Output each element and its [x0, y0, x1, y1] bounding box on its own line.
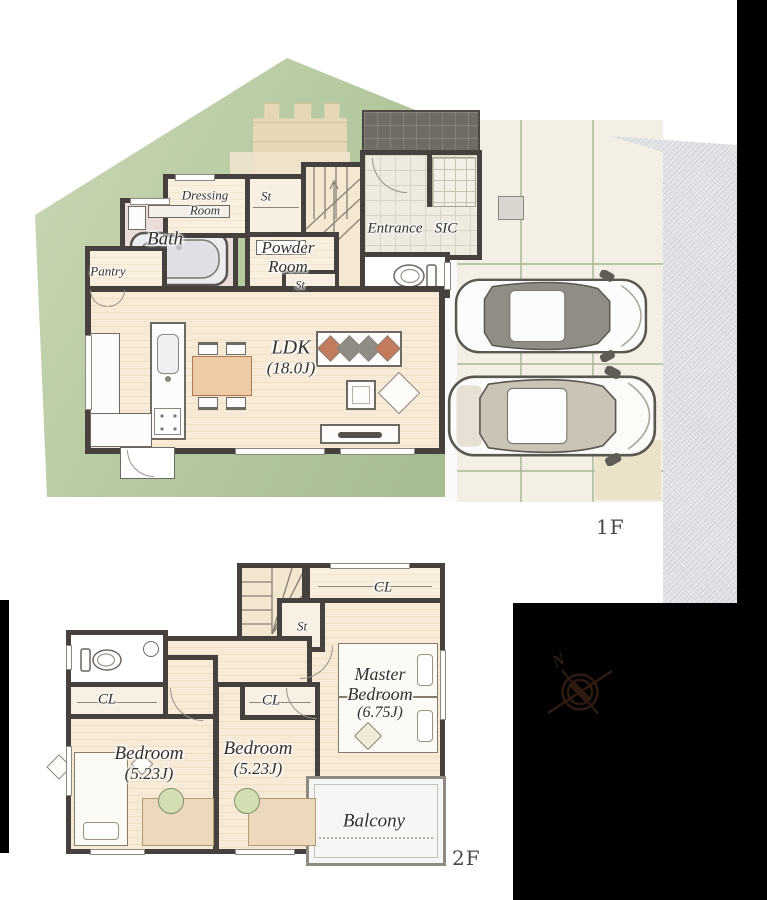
window — [235, 448, 325, 455]
label-pantry: Pantry — [90, 265, 125, 280]
car-icon — [446, 366, 658, 466]
label-cl-mid: CL — [262, 693, 280, 710]
window — [85, 335, 92, 410]
mask-top-right — [737, 0, 767, 605]
hand-basin — [143, 641, 159, 657]
balcony-drain-line — [319, 837, 433, 839]
desk-chair-icon — [158, 788, 184, 814]
cabinet — [90, 333, 120, 415]
closet-rod — [253, 207, 299, 208]
window — [330, 563, 410, 569]
entry-landing — [120, 447, 175, 479]
sofa-cushion — [374, 335, 401, 362]
label-balcony: Balcony — [343, 810, 405, 831]
room-toilet-2f — [66, 630, 168, 688]
dining-chair — [226, 342, 246, 355]
floor2-plan: N DN — [0, 560, 767, 900]
car-icon — [452, 270, 650, 362]
label-master-bedroom: Master Bedroom (6.75J) — [347, 664, 412, 722]
pillow — [83, 822, 119, 840]
window — [440, 650, 446, 720]
pillow — [417, 654, 433, 686]
label-bath: Bath — [147, 228, 183, 249]
toilet-icon — [79, 647, 125, 673]
label-entrance: Entrance — [368, 221, 423, 238]
label-dressing-room: Dressing Room — [182, 188, 228, 217]
sofa-icon — [316, 331, 402, 367]
label-powder-room: Powder Room — [262, 238, 315, 276]
door-arc — [127, 450, 154, 477]
kitchen-island-icon — [150, 322, 186, 440]
floor-plan-canvas: Dressing Room St Bath Powder Room Entran… — [0, 0, 767, 900]
window — [130, 198, 170, 205]
pillow — [417, 710, 433, 742]
dining-chair — [198, 342, 218, 355]
label-st-lower: St — [295, 278, 304, 291]
tv-board-icon — [320, 424, 400, 444]
window — [90, 849, 145, 855]
window — [235, 849, 295, 855]
label-sic: SIC — [435, 221, 458, 238]
room-st-upper — [245, 174, 307, 238]
label-st-upper: St — [261, 190, 271, 205]
dining-table-icon — [192, 356, 252, 396]
window — [66, 645, 72, 670]
cabinet — [90, 413, 152, 447]
floor1-label: 1F — [596, 515, 625, 539]
label-cl-west: CL — [98, 692, 116, 709]
label-bedroom-west: Bedroom (5.23J) — [115, 743, 184, 783]
desk-chair-icon — [234, 788, 260, 814]
closet-rod — [77, 702, 158, 703]
window — [340, 448, 415, 455]
window — [66, 746, 72, 796]
floor2-label: 2F — [452, 846, 481, 870]
parking-joint-line — [455, 263, 663, 265]
tv-icon — [338, 432, 382, 438]
kitchen-faucet — [165, 376, 171, 382]
sic-shelves — [432, 157, 476, 207]
window — [444, 262, 451, 290]
label-ldk: LDK (18.0J) — [267, 336, 316, 377]
stove-icon — [154, 408, 181, 435]
dining-chair — [226, 397, 246, 410]
floor1-plan: Dressing Room St Bath Powder Room Entran… — [0, 0, 767, 560]
label-st-2f: St — [297, 620, 307, 635]
dining-chair — [198, 397, 218, 410]
side-table — [346, 380, 376, 410]
mask-bottom-right: N — [513, 603, 767, 900]
utility-box — [498, 196, 524, 220]
label-bedroom-mid: Bedroom (5.23J) — [224, 738, 293, 778]
window — [175, 174, 215, 181]
washer-icon — [128, 206, 146, 230]
mask-left-strip — [0, 600, 9, 853]
parking-joint-line — [455, 363, 663, 365]
kitchen-sink — [157, 334, 179, 374]
label-cl-top: CL — [374, 580, 392, 597]
